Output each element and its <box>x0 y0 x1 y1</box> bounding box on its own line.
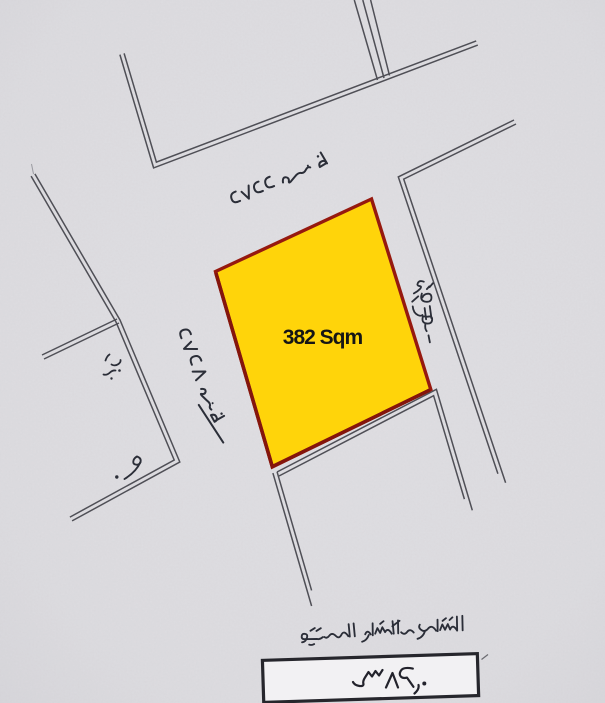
svg-text:382 Sqm: 382 Sqm <box>283 326 363 349</box>
